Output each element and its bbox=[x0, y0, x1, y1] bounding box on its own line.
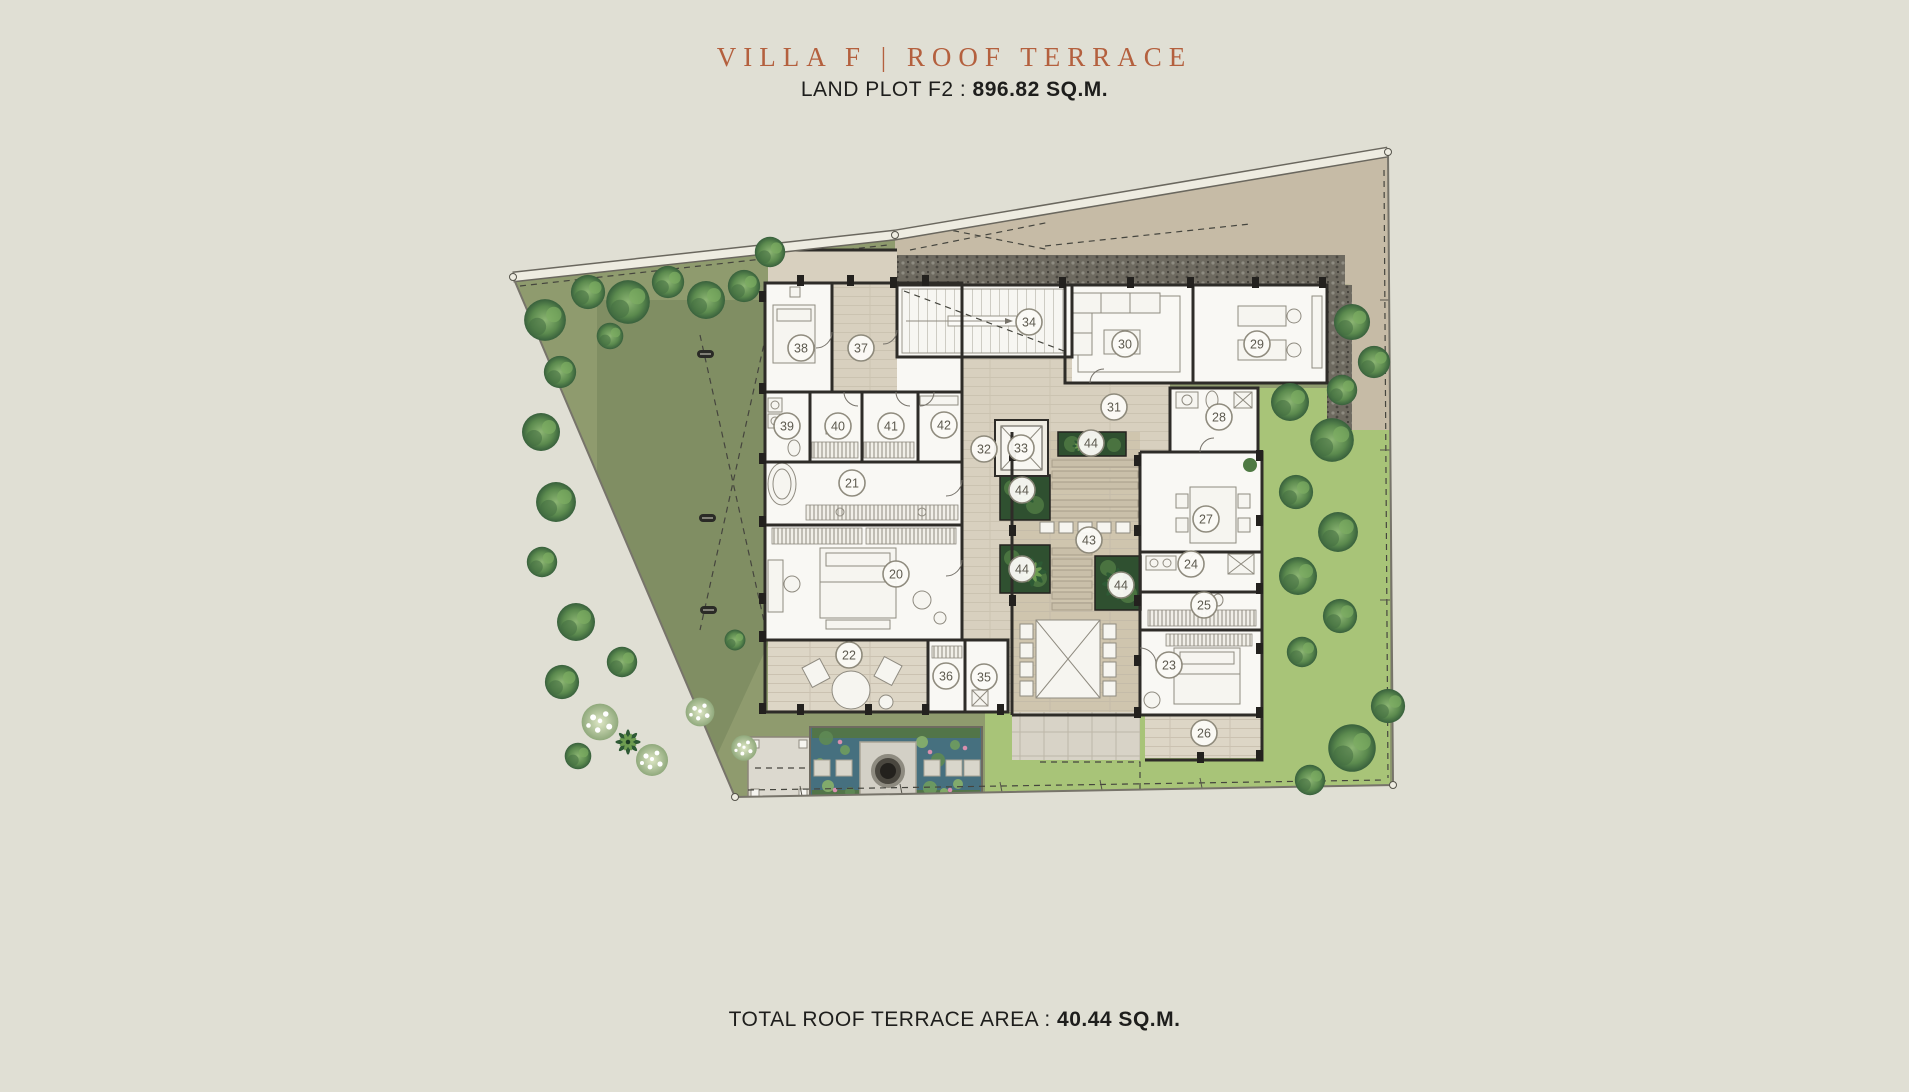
garden-tree bbox=[725, 630, 746, 651]
svg-text:32: 32 bbox=[977, 443, 991, 457]
svg-text:43: 43 bbox=[1082, 534, 1096, 548]
area-label: TOTAL ROOF TERRACE AREA : bbox=[729, 1008, 1051, 1031]
garden-tree bbox=[731, 735, 757, 761]
yellow-flower-border bbox=[796, 798, 990, 817]
svg-text:41: 41 bbox=[884, 420, 898, 434]
svg-text:40: 40 bbox=[831, 420, 845, 434]
garden-tree bbox=[1327, 375, 1357, 405]
fire-bowl-platform bbox=[860, 742, 916, 800]
room-marker: 39 bbox=[774, 413, 800, 439]
garden-tree bbox=[571, 275, 605, 309]
svg-text:27: 27 bbox=[1199, 513, 1213, 527]
garden-tree bbox=[565, 743, 592, 770]
garden-tree bbox=[636, 744, 668, 776]
svg-text:42: 42 bbox=[937, 419, 951, 433]
garden-tree bbox=[1271, 383, 1309, 421]
svg-text:34: 34 bbox=[1022, 316, 1036, 330]
garden-tree bbox=[1334, 304, 1370, 340]
garden-tree bbox=[686, 698, 715, 727]
garden-tree bbox=[597, 323, 624, 350]
garden-tree bbox=[545, 665, 579, 699]
svg-text:26: 26 bbox=[1197, 727, 1211, 741]
svg-text:35: 35 bbox=[977, 671, 991, 685]
room-marker: 43 bbox=[1076, 527, 1102, 553]
room-marker: 41 bbox=[878, 413, 904, 439]
garden-tree bbox=[1310, 418, 1354, 462]
plot-subtitle: LAND PLOT F2 : 896.82 SQ.M. bbox=[0, 78, 1909, 102]
room-marker: 44 bbox=[1009, 556, 1035, 582]
garden-tree bbox=[1279, 475, 1313, 509]
room-marker: 40 bbox=[825, 413, 851, 439]
room-marker: 35 bbox=[971, 664, 997, 690]
garden-tree bbox=[522, 413, 560, 451]
room-marker: 24 bbox=[1178, 551, 1204, 577]
page: VILLA F | ROOF TERRACE LAND PLOT F2 : 89… bbox=[0, 0, 1909, 1092]
room-marker: 33 bbox=[1008, 435, 1034, 461]
svg-text:44: 44 bbox=[1084, 437, 1098, 451]
garden-tree bbox=[1287, 637, 1317, 667]
garden-tree bbox=[1279, 557, 1317, 595]
garden-tree bbox=[527, 547, 557, 577]
plot-label: LAND PLOT F2 : bbox=[801, 78, 966, 101]
svg-text:24: 24 bbox=[1184, 558, 1198, 572]
garden-tree bbox=[728, 270, 760, 302]
svg-text:44: 44 bbox=[1015, 484, 1029, 498]
garden-tree bbox=[524, 299, 566, 341]
svg-text:44: 44 bbox=[1015, 563, 1029, 577]
palm-tree bbox=[615, 729, 640, 754]
plot-value: 896.82 SQ.M. bbox=[973, 78, 1109, 101]
room-marker: 44 bbox=[1009, 477, 1035, 503]
garden-tree bbox=[1358, 346, 1390, 378]
garden-tree bbox=[1323, 599, 1357, 633]
lily-pond bbox=[810, 727, 982, 802]
room-marker: 20 bbox=[883, 561, 909, 587]
garden-tree bbox=[582, 704, 619, 741]
room-marker: 37 bbox=[848, 335, 874, 361]
svg-text:39: 39 bbox=[780, 420, 794, 434]
room-marker: 27 bbox=[1193, 506, 1219, 532]
garden-tree bbox=[755, 237, 785, 267]
room-marker: 30 bbox=[1112, 331, 1138, 357]
garden-tree bbox=[652, 266, 684, 298]
svg-text:44: 44 bbox=[1114, 579, 1128, 593]
white-flower-border bbox=[988, 795, 1321, 818]
garden-tree bbox=[607, 647, 637, 677]
garden-tree bbox=[687, 281, 725, 319]
svg-text:29: 29 bbox=[1250, 338, 1264, 352]
svg-text:33: 33 bbox=[1014, 442, 1028, 456]
room-marker: 34 bbox=[1016, 309, 1042, 335]
room-marker: 22 bbox=[836, 642, 862, 668]
svg-text:23: 23 bbox=[1162, 659, 1176, 673]
svg-text:25: 25 bbox=[1197, 599, 1211, 613]
svg-text:21: 21 bbox=[845, 477, 859, 491]
room-marker: 23 bbox=[1156, 652, 1182, 678]
svg-text:22: 22 bbox=[842, 649, 856, 663]
room-marker: 25 bbox=[1191, 592, 1217, 618]
garden-tree bbox=[544, 356, 576, 388]
area-value: 40.44 SQ.M. bbox=[1057, 1008, 1180, 1031]
room-marker: 26 bbox=[1191, 720, 1217, 746]
garden-tree bbox=[1328, 724, 1376, 772]
svg-text:37: 37 bbox=[854, 342, 868, 356]
room-marker: 36 bbox=[933, 663, 959, 689]
svg-text:20: 20 bbox=[889, 568, 903, 582]
garden-tree bbox=[557, 603, 595, 641]
svg-text:30: 30 bbox=[1118, 338, 1132, 352]
room-marker: 29 bbox=[1244, 331, 1270, 357]
svg-text:28: 28 bbox=[1212, 411, 1226, 425]
building bbox=[759, 250, 1327, 763]
svg-text:31: 31 bbox=[1107, 401, 1121, 415]
garden-tree bbox=[1371, 689, 1405, 723]
total-area-note: TOTAL ROOF TERRACE AREA : 40.44 SQ.M. bbox=[0, 1008, 1909, 1032]
room-marker: 44 bbox=[1108, 572, 1134, 598]
floor-plan: 2021222324252627282930313233343536373839… bbox=[480, 118, 1420, 818]
svg-text:38: 38 bbox=[794, 342, 808, 356]
room-marker: 32 bbox=[971, 436, 997, 462]
garden-tree bbox=[1318, 512, 1358, 552]
garden-tree bbox=[1295, 765, 1325, 795]
room-marker: 38 bbox=[788, 335, 814, 361]
svg-text:36: 36 bbox=[939, 670, 953, 684]
garden-tree bbox=[536, 482, 576, 522]
room-marker: 44 bbox=[1078, 430, 1104, 456]
room-marker: 28 bbox=[1206, 404, 1232, 430]
page-title: VILLA F | ROOF TERRACE bbox=[0, 42, 1909, 73]
room-marker: 42 bbox=[931, 412, 957, 438]
room-marker: 21 bbox=[839, 470, 865, 496]
room-marker: 31 bbox=[1101, 394, 1127, 420]
garden-tree bbox=[606, 280, 650, 324]
